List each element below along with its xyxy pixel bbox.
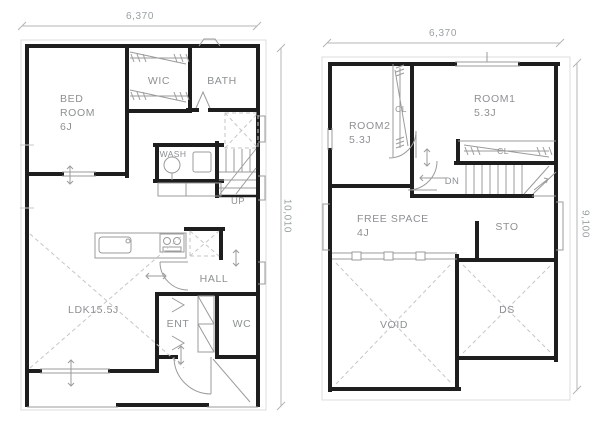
entrance-door xyxy=(174,357,250,402)
room-label-sto: STO xyxy=(495,221,518,233)
first-floor-plan: 6,370 10,010 xyxy=(18,11,293,410)
floor-plan-drawing: 6,370 10,010 xyxy=(0,0,600,438)
dim-height-1f: 10,010 xyxy=(282,199,293,233)
closet-vertical: CL xyxy=(393,64,408,157)
closet-label-horizontal: CL xyxy=(497,146,509,156)
windows-2f xyxy=(323,202,563,250)
room-label-bedroom-line3: 6J xyxy=(60,121,72,133)
bath-door xyxy=(196,92,210,108)
second-floor-plan: 6,370 9,100 xyxy=(322,28,591,400)
room-label-wic: WIC xyxy=(148,75,170,87)
dimension-right-2f: 9,100 xyxy=(573,59,591,394)
room-labels-1f: BED ROOM 6J WIC BATH WASH UP LDK15.5J HA… xyxy=(60,75,251,330)
void-railing xyxy=(332,252,457,260)
dimension-right-1f: 10,010 xyxy=(277,44,293,410)
dimension-top-1f: 6,370 xyxy=(18,11,261,30)
room-label-room1-line1: ROOM1 xyxy=(474,93,516,105)
floor-plan-canvas: 6,370 10,010 xyxy=(0,0,600,438)
closet-horizontal: CL xyxy=(458,141,556,157)
room-label-ldk: LDK15.5J xyxy=(68,304,119,316)
room-label-bedroom-line2: ROOM xyxy=(60,107,95,119)
room-label-wash: WASH xyxy=(160,149,187,159)
staircase-2f xyxy=(466,165,556,194)
kitchen-counter xyxy=(95,233,186,258)
room-label-room2-line1: ROOM2 xyxy=(349,120,391,132)
room-label-room1-line2: 5.3J xyxy=(474,107,496,119)
utility-square-1f xyxy=(225,113,258,148)
room-label-hall: HALL xyxy=(200,273,229,285)
dim-width-1f: 6,370 xyxy=(126,11,154,22)
room-label-room2-line2: 5.3J xyxy=(349,134,371,146)
stairs-label-dn: DN xyxy=(445,176,460,187)
closet-label-vertical: CL xyxy=(395,104,407,114)
room-label-freespace-line1: FREE SPACE xyxy=(357,213,429,225)
stairs-label-up: UP xyxy=(231,196,245,207)
room-label-bedroom-line1: BED xyxy=(60,93,83,105)
ldk-cross xyxy=(30,234,184,368)
room-label-void: VOID xyxy=(380,319,408,331)
room-label-wc: WC xyxy=(233,318,252,330)
dim-width-2f: 6,370 xyxy=(429,28,457,39)
room-label-ent: ENT xyxy=(167,318,190,330)
room-label-freespace-line2: 4J xyxy=(357,227,369,239)
kitchen-square xyxy=(190,231,219,256)
room-label-ds: DS xyxy=(499,304,515,316)
dim-height-2f: 9,100 xyxy=(580,210,591,238)
room-label-bath: BATH xyxy=(207,75,237,87)
staircase-1f xyxy=(219,149,256,194)
dimension-top-2f: 6,370 xyxy=(323,28,564,47)
